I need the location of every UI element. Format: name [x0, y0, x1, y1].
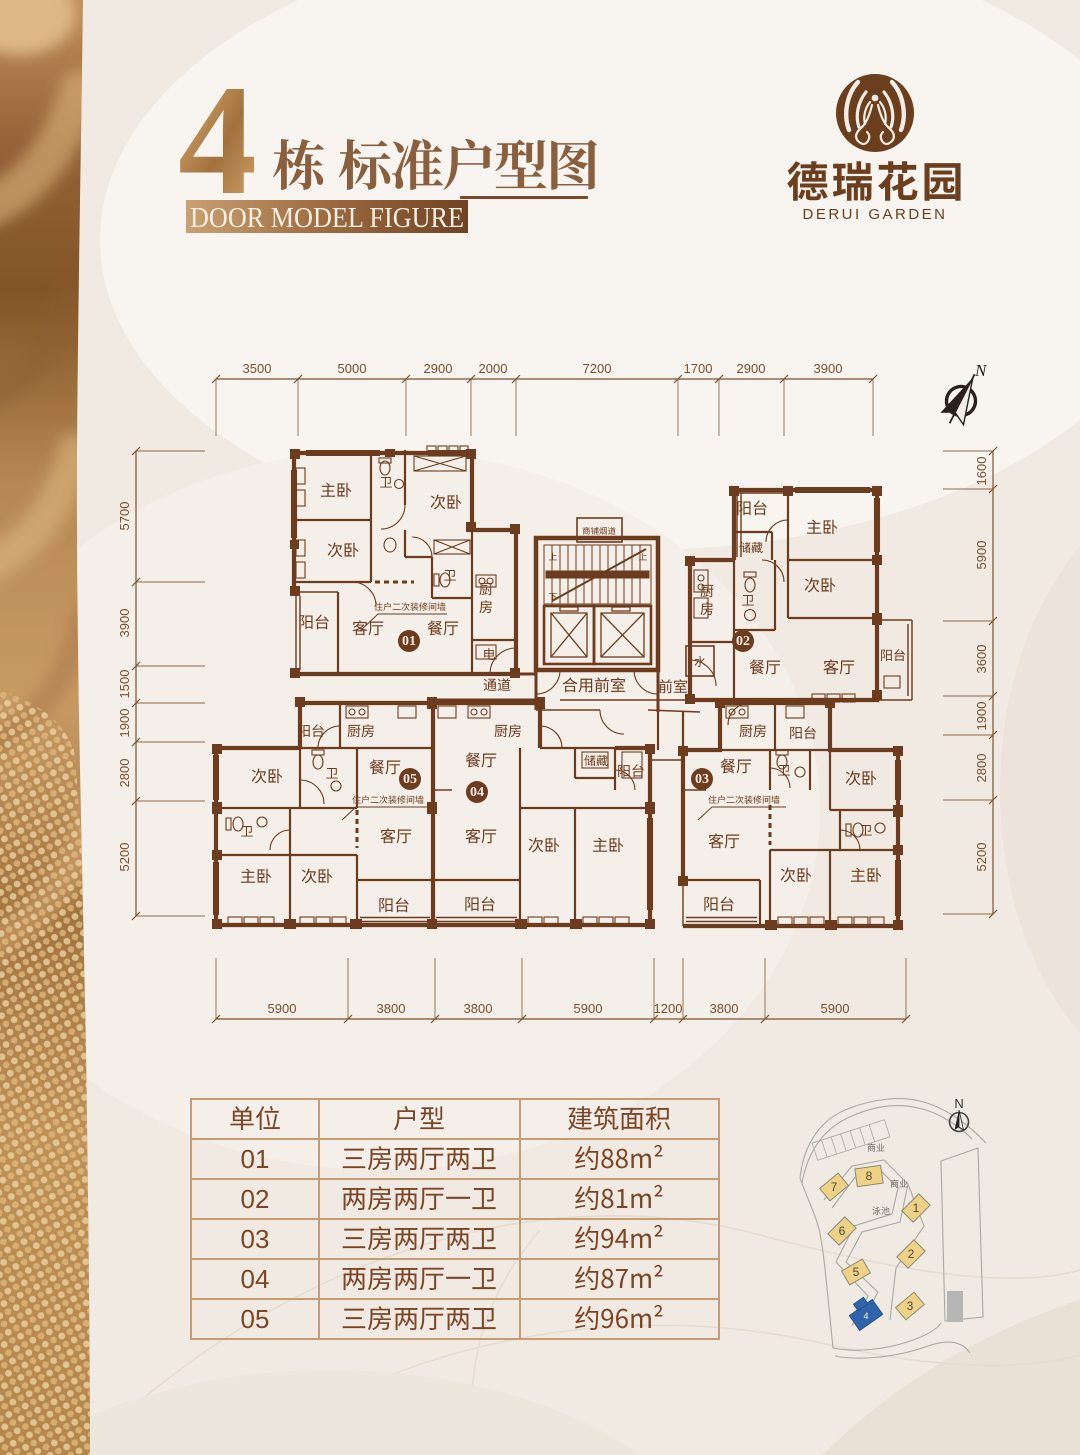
svg-text:02: 02	[736, 634, 750, 649]
svg-text:5: 5	[853, 1265, 860, 1279]
svg-text:3500: 3500	[243, 361, 272, 376]
svg-text:03: 03	[695, 772, 709, 787]
svg-text:7200: 7200	[583, 361, 612, 376]
svg-text:05: 05	[403, 772, 417, 787]
svg-text:8: 8	[866, 1169, 873, 1183]
svg-text:3800: 3800	[710, 1001, 739, 1016]
svg-text:03: 03	[241, 1224, 270, 1254]
svg-text:2800: 2800	[974, 754, 989, 783]
svg-text:3600: 3600	[974, 645, 989, 674]
svg-text:3900: 3900	[814, 361, 843, 376]
svg-text:5900: 5900	[821, 1001, 850, 1016]
svg-text:5900: 5900	[574, 1001, 603, 1016]
svg-text:2000: 2000	[479, 361, 508, 376]
svg-text:3800: 3800	[377, 1001, 406, 1016]
svg-text:04: 04	[241, 1264, 270, 1294]
svg-text:02: 02	[241, 1184, 270, 1214]
svg-text:01: 01	[402, 634, 416, 649]
svg-text:3800: 3800	[464, 1001, 493, 1016]
svg-text:1600: 1600	[974, 457, 989, 486]
svg-text:2: 2	[908, 1247, 915, 1261]
svg-text:1: 1	[913, 1201, 920, 1215]
svg-text:1200: 1200	[654, 1001, 683, 1016]
svg-text:7: 7	[831, 1180, 838, 1194]
svg-text:04: 04	[470, 785, 484, 800]
svg-text:5900: 5900	[974, 541, 989, 570]
svg-text:2900: 2900	[737, 361, 766, 376]
svg-text:1700: 1700	[684, 361, 713, 376]
svg-text:5700: 5700	[117, 502, 132, 531]
svg-text:05: 05	[241, 1304, 270, 1334]
svg-text:DERUI GARDEN: DERUI GARDEN	[802, 206, 947, 223]
svg-text:1900: 1900	[974, 702, 989, 731]
svg-text:N: N	[954, 1096, 963, 1111]
svg-text:2900: 2900	[424, 361, 453, 376]
svg-text:1900: 1900	[117, 709, 132, 738]
svg-text:3: 3	[907, 1299, 914, 1313]
svg-text:5000: 5000	[338, 361, 367, 376]
svg-text:DOOR MODEL FIGURE: DOOR MODEL FIGURE	[190, 202, 464, 234]
svg-text:5200: 5200	[117, 843, 132, 872]
svg-text:5900: 5900	[268, 1001, 297, 1016]
svg-text:3900: 3900	[117, 609, 132, 638]
svg-text:1500: 1500	[117, 670, 132, 699]
svg-text:5200: 5200	[974, 843, 989, 872]
svg-text:N: N	[974, 361, 988, 380]
svg-text:2800: 2800	[117, 759, 132, 788]
svg-text:6: 6	[839, 1224, 846, 1238]
svg-text:01: 01	[241, 1144, 270, 1174]
svg-text:4: 4	[863, 1311, 868, 1321]
